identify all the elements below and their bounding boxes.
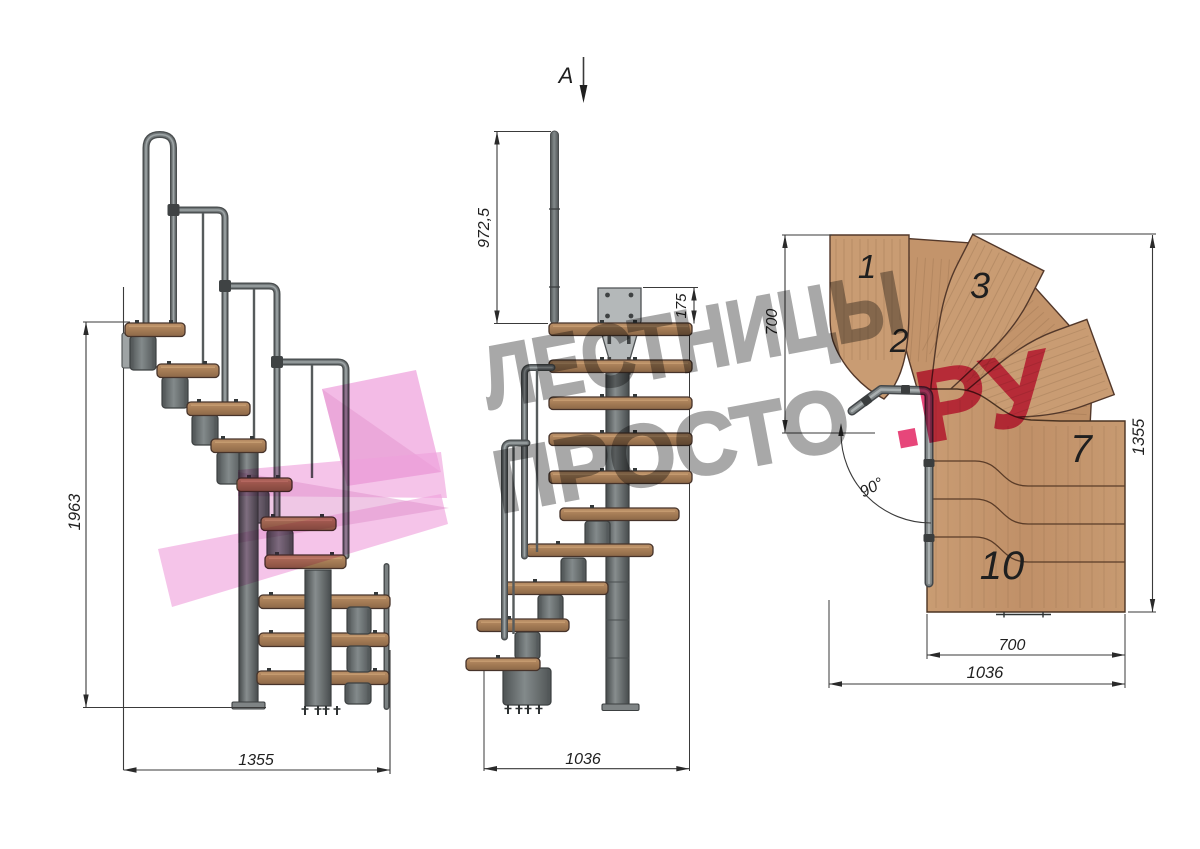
svg-text:1963: 1963 xyxy=(66,493,84,531)
svg-text:175: 175 xyxy=(673,293,690,319)
svg-text:3: 3 xyxy=(970,265,990,306)
svg-text:90°: 90° xyxy=(857,475,887,502)
svg-text:700: 700 xyxy=(764,309,781,336)
svg-text:1036: 1036 xyxy=(967,664,1005,682)
svg-text:1355: 1355 xyxy=(1130,418,1148,456)
svg-text:1: 1 xyxy=(858,248,876,285)
svg-text:1355: 1355 xyxy=(238,752,274,769)
svg-text:2: 2 xyxy=(889,322,908,359)
svg-text:10: 10 xyxy=(980,544,1025,588)
svg-text:7: 7 xyxy=(1070,428,1093,471)
svg-text:700: 700 xyxy=(999,637,1026,654)
svg-text:A: A xyxy=(557,63,574,88)
svg-text:1036: 1036 xyxy=(565,751,601,768)
svg-text:972,5: 972,5 xyxy=(476,208,493,248)
